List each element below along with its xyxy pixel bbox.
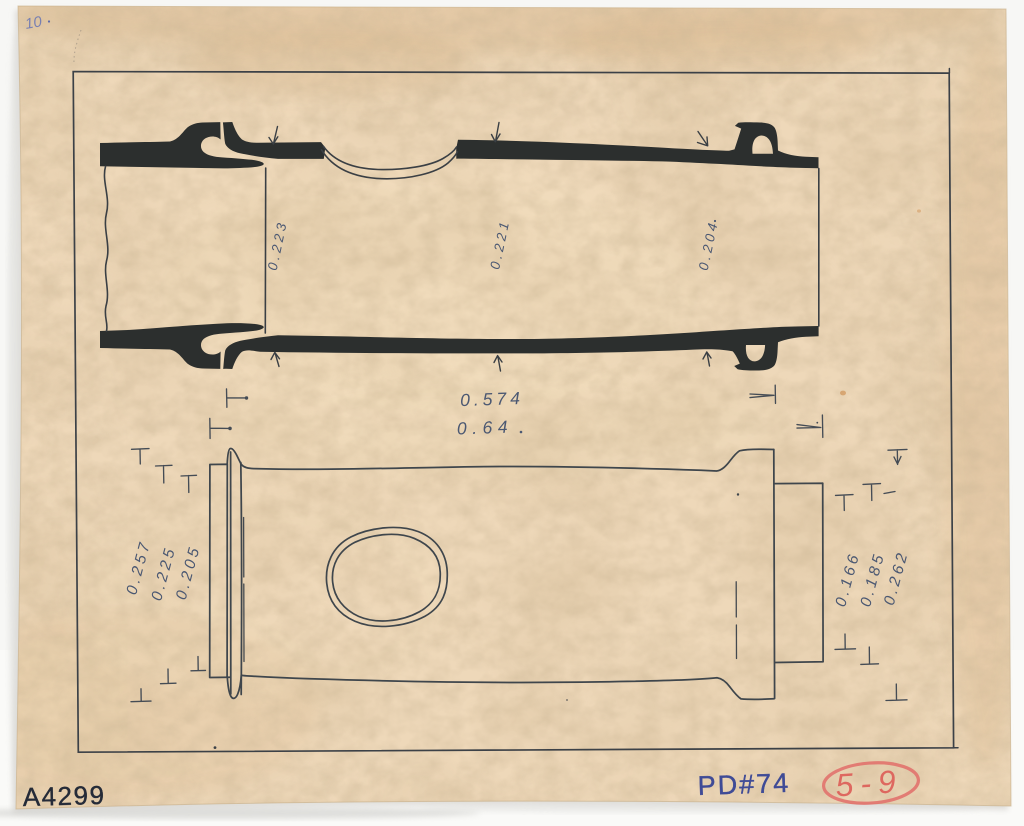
svg-text:5-9: 5-9 <box>834 763 904 804</box>
svg-text:0.574: 0.574 <box>460 388 524 410</box>
svg-text:A4299: A4299 <box>22 780 105 812</box>
svg-text:PD#74: PD#74 <box>697 768 791 801</box>
svg-text:0.64: 0.64 <box>457 417 514 439</box>
